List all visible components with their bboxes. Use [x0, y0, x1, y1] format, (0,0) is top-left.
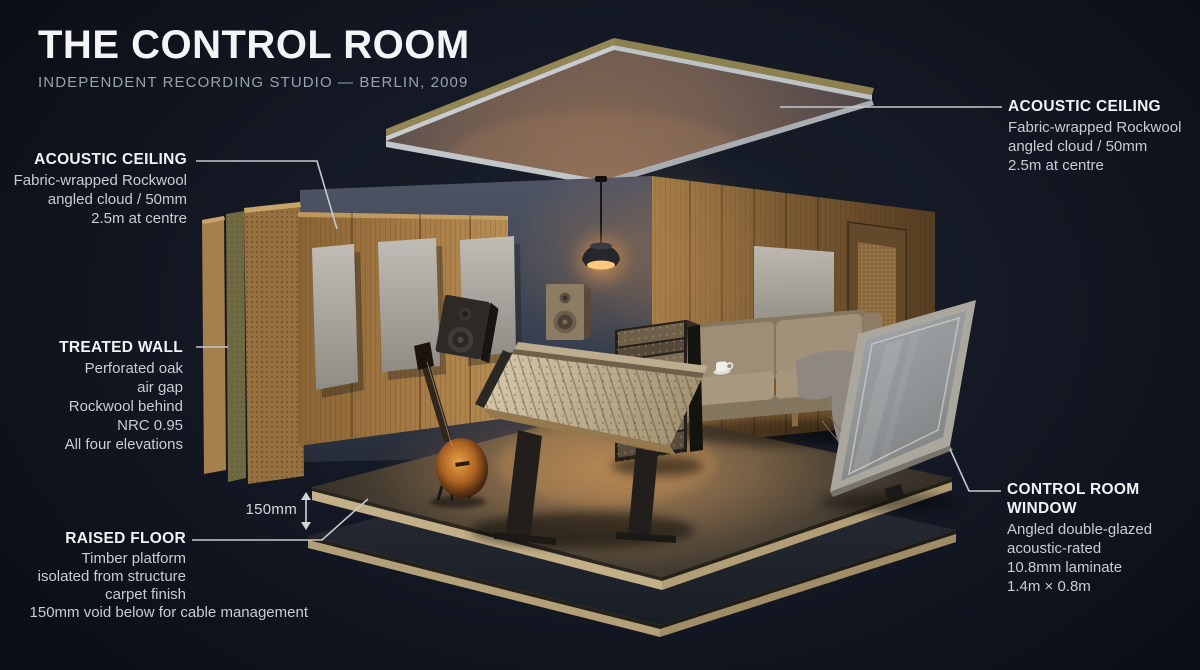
callout-acoustic-ceiling-left: ACOUSTIC CEILING Fabric-wrapped Rockwool…: [14, 150, 187, 228]
oak-finish-panel: [202, 216, 226, 474]
callout-line: Timber platform: [30, 550, 186, 568]
callout-heading: CONTROL ROOM WINDOW: [1007, 480, 1200, 518]
callout-acoustic-ceiling-right: ACOUSTIC CEILING Fabric-wrapped Rockwool…: [1008, 97, 1181, 175]
callout-heading: TREATED WALL: [59, 338, 183, 357]
perforated-oak-panel: [244, 202, 304, 484]
callout-line: angled cloud / 50mm: [14, 190, 187, 209]
page-subtitle: INDEPENDENT RECORDING STUDIO — BERLIN, 2…: [38, 74, 470, 91]
callout-line: 10.8mm laminate: [1007, 558, 1200, 577]
dimension-arrow-150mm: [301, 492, 311, 530]
callout-line: Rockwool behind: [59, 397, 183, 416]
dimension-label-150mm: 150mm: [245, 501, 297, 518]
infographic-canvas: THE CONTROL ROOM INDEPENDENT RECORDING S…: [0, 0, 1200, 670]
studio-monitor-right: [546, 284, 591, 340]
callout-control-room-window: CONTROL ROOM WINDOW Angled double-glazed…: [1007, 480, 1200, 596]
callout-heading: ACOUSTIC CEILING: [14, 150, 187, 169]
callout-line: acoustic-rated: [1007, 539, 1200, 558]
callout-raised-floor: RAISED FLOOR Timber platform isolated fr…: [30, 530, 186, 622]
callout-line: Fabric-wrapped Rockwool: [1008, 118, 1181, 137]
callout-line: isolated from structure: [30, 568, 186, 586]
page-title: THE CONTROL ROOM: [38, 24, 470, 66]
rockwool-layer: [226, 211, 246, 482]
title-block: THE CONTROL ROOM INDEPENDENT RECORDING S…: [38, 24, 470, 91]
callout-line: carpet finish: [30, 586, 186, 604]
callout-line: 2.5m at centre: [1008, 156, 1181, 175]
leader-control-room-window: [950, 449, 1001, 491]
callout-line: Fabric-wrapped Rockwool: [14, 171, 187, 190]
callout-line: All four elevations: [59, 435, 183, 454]
callout-line: angled cloud / 50mm: [1008, 137, 1181, 156]
callout-line: Angled double-glazed: [1007, 520, 1200, 539]
callout-line: 2.5m at centre: [14, 209, 187, 228]
studio-monitor-left: [435, 294, 500, 363]
callout-line: 1.4m × 0.8m: [1007, 577, 1200, 596]
callout-line: NRC 0.95: [59, 416, 183, 435]
callout-heading: ACOUSTIC CEILING: [1008, 97, 1181, 116]
callout-line: 150mm void below for cable management: [30, 604, 308, 622]
callout-line: Perforated oak: [59, 359, 183, 378]
callout-treated-wall: TREATED WALL Perforated oak air gap Rock…: [59, 338, 183, 454]
callout-line: air gap: [59, 378, 183, 397]
callout-heading: RAISED FLOOR: [30, 530, 186, 548]
